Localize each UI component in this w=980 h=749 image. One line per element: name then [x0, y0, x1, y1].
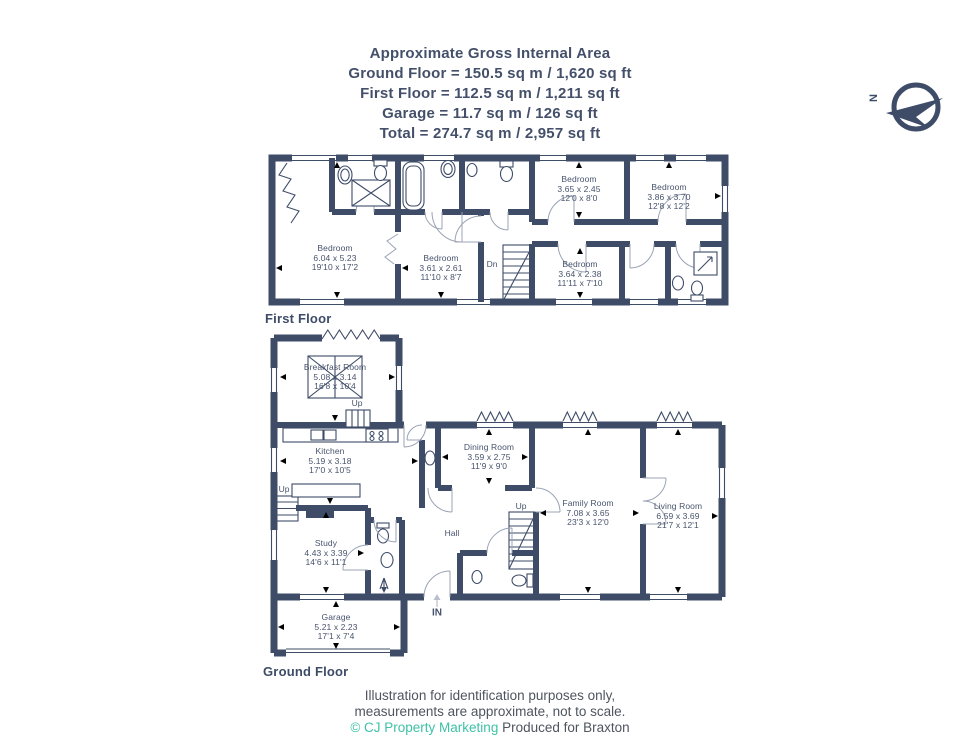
ground-floor-label: Ground Floor — [263, 664, 348, 679]
room-label-kitchen: Kitchen 5.19 x 3.18 17'0 x 10'5 — [308, 447, 351, 476]
room-size-imperial: 17'0 x 10'5 — [308, 466, 351, 476]
room-size-imperial: 12'0 x 8'0 — [557, 194, 600, 204]
compass-north-label: N — [868, 94, 880, 102]
room-label-bedroom-4: Bedroom 3.86 x 3.70 12'8 x 12'2 — [647, 183, 690, 212]
disclaimer-line-1: Illustration for identification purposes… — [0, 688, 980, 704]
room-label-bedroom-5: Bedroom 3.64 x 2.38 11'11 x 7'10 — [557, 260, 602, 289]
first-floor-label: First Floor — [265, 311, 331, 326]
floorplan-page: Approximate Gross Internal Area Ground F… — [0, 0, 980, 749]
kitchen-steps-up-label: Up — [279, 484, 290, 494]
room-label-bedroom-2: Bedroom 3.61 x 2.61 11'10 x 8'7 — [419, 254, 462, 283]
room-label-garage: Garage 5.21 x 2.23 17'1 x 7'4 — [314, 613, 357, 642]
entrance-in-label: IN — [432, 608, 442, 619]
room-size-imperial: 11'10 x 8'7 — [419, 273, 462, 283]
room-size-imperial: 17'1 x 7'4 — [314, 632, 357, 642]
area-summary-title: Approximate Gross Internal Area — [0, 44, 980, 64]
room-label-bedroom-1: Bedroom 6.04 x 5.23 19'10 x 17'2 — [312, 244, 359, 273]
room-size-imperial: 11'9 x 9'0 — [464, 462, 514, 472]
breakfast-steps-up-label: Up — [352, 398, 363, 408]
disclaimer: Illustration for identification purposes… — [0, 688, 980, 736]
stairs-down-label: Dn — [487, 259, 498, 269]
room-size-imperial: 14'6 x 11'1 — [304, 558, 347, 568]
hall-label: Hall — [445, 528, 460, 538]
area-summary-garage: Garage = 11.7 sq m / 126 sq ft — [0, 104, 980, 124]
room-label-living-room: Living Room 6.59 x 3.69 21'7 x 12'1 — [654, 502, 702, 531]
room-size-imperial: 21'7 x 12'1 — [654, 521, 702, 531]
room-size-imperial: 16'8 x 10'4 — [304, 382, 366, 392]
room-size-imperial: 11'11 x 7'10 — [557, 279, 602, 289]
disclaimer-line-2: measurements are approximate, not to sca… — [0, 704, 980, 720]
area-summary-total: Total = 274.7 sq m / 2,957 sq ft — [0, 124, 980, 144]
room-label-bedroom-3: Bedroom 3.65 x 2.45 12'0 x 8'0 — [557, 175, 600, 204]
credit-produced-for: Produced for Braxton — [498, 720, 629, 735]
stairs-up-label: Up — [516, 501, 527, 511]
room-size-imperial: 12'8 x 12'2 — [647, 202, 690, 212]
room-size-imperial: 19'10 x 17'2 — [312, 263, 359, 273]
area-summary-first: First Floor = 112.5 sq m / 1,211 sq ft — [0, 84, 980, 104]
credit-line: © CJ Property Marketing Produced for Bra… — [0, 720, 980, 736]
room-label-study: Study 4.43 x 3.39 14'6 x 11'1 — [304, 539, 347, 568]
room-size-imperial: 23'3 x 12'0 — [562, 518, 613, 528]
room-label-family-room: Family Room 7.08 x 3.65 23'3 x 12'0 — [562, 499, 613, 528]
first-floor-plan — [272, 153, 731, 308]
room-label-breakfast-room: Breakfast Room 5.08 x 3.14 16'8 x 10'4 — [304, 363, 366, 392]
room-label-dining-room: Dining Room 3.59 x 2.75 11'9 x 9'0 — [464, 443, 514, 472]
area-summary-ground: Ground Floor = 150.5 sq m / 1,620 sq ft — [0, 64, 980, 84]
credit-company: © CJ Property Marketing — [350, 720, 498, 735]
area-summary: Approximate Gross Internal Area Ground F… — [0, 44, 980, 144]
